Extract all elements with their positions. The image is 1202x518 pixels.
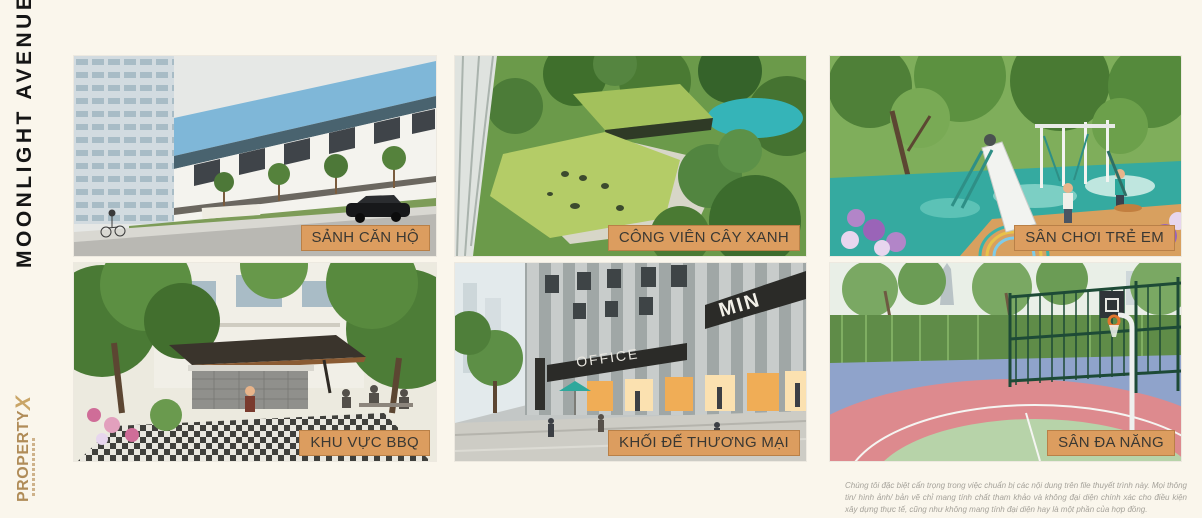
amenity-label-bbq-area: KHU VỰC BBQ bbox=[299, 430, 430, 456]
amenity-label-multipurpose-court: SÂN ĐA NĂNG bbox=[1047, 430, 1175, 456]
pool bbox=[707, 98, 803, 138]
hedge bbox=[830, 315, 1181, 363]
amenity-label-green-park: CÔNG VIÊN CÂY XANH bbox=[608, 225, 800, 251]
tile-commercial-podium: OFFICE MIN bbox=[455, 263, 806, 461]
amenity-label-kids-playground: SÂN CHƠI TRẺ EM bbox=[1014, 225, 1175, 251]
page-title: MOONLIGHT AVENUE bbox=[13, 10, 37, 268]
amenity-label-commercial-podium: KHỐI ĐẾ THƯƠNG MẠI bbox=[608, 430, 800, 456]
tile-bbq-area: KHU VỰC BBQ bbox=[74, 263, 436, 461]
legal-disclaimer: Chúng tôi đặc biệt cẩn trọng trong việc … bbox=[845, 480, 1187, 516]
tile-kids-playground: SÂN CHƠI TRẺ EM bbox=[830, 56, 1181, 256]
tile-green-park: CÔNG VIÊN CÂY XANH bbox=[455, 56, 806, 256]
tile-multipurpose-court: SÂN ĐA NĂNG bbox=[830, 263, 1181, 461]
amenity-label-lobby: SẢNH CĂN HỘ bbox=[301, 225, 430, 251]
logo-tagline bbox=[32, 436, 35, 496]
child-figure bbox=[245, 386, 255, 412]
residential-tower bbox=[74, 56, 174, 224]
tile-lobby: SẢNH CĂN HỘ bbox=[74, 56, 436, 256]
logo-text: PROPERTY bbox=[15, 410, 32, 502]
brochure-page: MOONLIGHT AVENUE PROPERTYX bbox=[0, 0, 1202, 518]
logo-x-mark: X bbox=[12, 395, 35, 410]
